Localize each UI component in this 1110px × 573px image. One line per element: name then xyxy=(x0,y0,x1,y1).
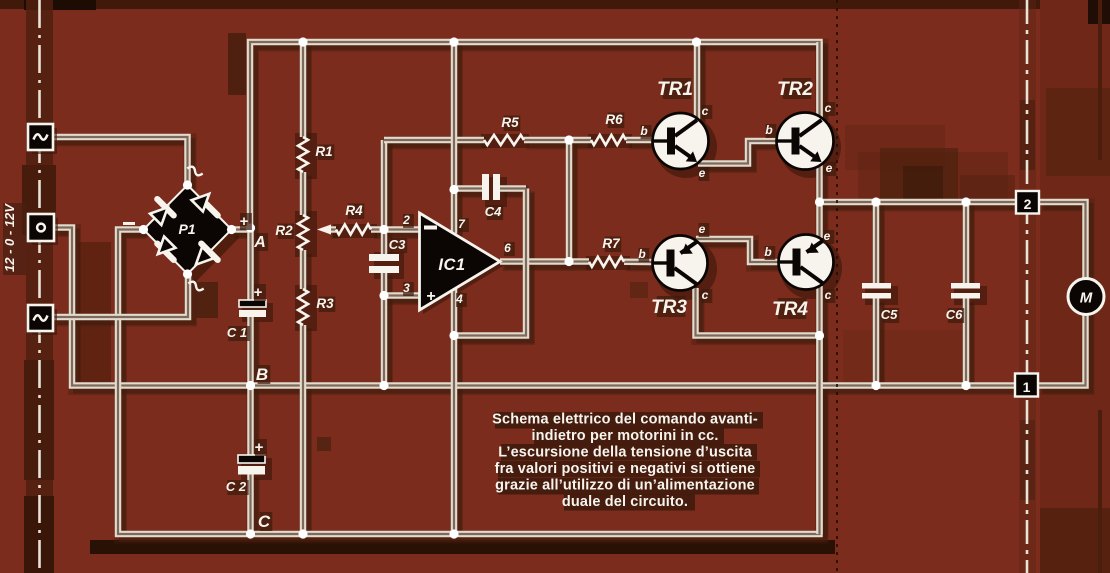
svg-text:+: + xyxy=(255,439,264,456)
svg-text:b: b xyxy=(640,124,647,138)
svg-text:TR4: TR4 xyxy=(772,299,808,320)
svg-text:indietro per motorini in cc.: indietro per motorini in cc. xyxy=(531,428,718,444)
svg-text:e: e xyxy=(824,229,831,243)
svg-text:c: c xyxy=(825,101,832,115)
svg-text:c: c xyxy=(702,104,709,118)
svg-text:2: 2 xyxy=(402,213,410,227)
svg-text:R1: R1 xyxy=(315,144,332,159)
svg-text:A: A xyxy=(253,234,266,251)
svg-text:TR2: TR2 xyxy=(777,79,813,100)
svg-text:e: e xyxy=(826,161,833,175)
svg-text:e: e xyxy=(699,222,706,236)
svg-text:12 - 0 - 12V: 12 - 0 - 12V xyxy=(2,203,17,272)
svg-text:R7: R7 xyxy=(602,236,621,251)
svg-text:R3: R3 xyxy=(316,296,334,311)
svg-text:L’escursione della tensione d’: L’escursione della tensione d’uscita xyxy=(498,445,752,461)
svg-text:TR1: TR1 xyxy=(657,79,693,100)
svg-text:C3: C3 xyxy=(389,237,406,252)
svg-text:C4: C4 xyxy=(485,204,502,219)
svg-text:R5: R5 xyxy=(501,115,519,130)
svg-text:R4: R4 xyxy=(345,203,363,218)
svg-text:b: b xyxy=(638,247,645,261)
svg-text:duale del circuito.: duale del circuito. xyxy=(562,494,688,510)
svg-text:+: + xyxy=(254,284,263,301)
svg-text:C: C xyxy=(258,512,271,531)
svg-text:R6: R6 xyxy=(605,112,623,127)
svg-text:c: c xyxy=(825,288,832,302)
svg-text:C6: C6 xyxy=(946,307,963,322)
svg-text:M: M xyxy=(1080,290,1093,307)
svg-text:4: 4 xyxy=(455,292,463,306)
svg-text:IC1: IC1 xyxy=(438,256,465,274)
svg-text:Schema elettrico del comando a: Schema elettrico del comando avanti- xyxy=(492,412,758,428)
svg-text:C5: C5 xyxy=(881,307,898,322)
svg-text:c: c xyxy=(702,288,709,302)
svg-text:1: 1 xyxy=(1023,379,1031,395)
svg-text:2: 2 xyxy=(1024,196,1032,212)
svg-text:R2: R2 xyxy=(275,223,293,238)
svg-text:b: b xyxy=(764,245,771,259)
svg-text:+: + xyxy=(240,213,249,230)
svg-text:fra valori positivi e negativi: fra valori positivi e negativi si ottien… xyxy=(495,461,756,477)
svg-text:B: B xyxy=(256,365,268,384)
svg-text:+: + xyxy=(426,288,435,305)
svg-text:e: e xyxy=(699,166,706,180)
svg-text:P1: P1 xyxy=(178,221,195,237)
svg-text:C 1: C 1 xyxy=(227,325,247,340)
svg-text:grazie all’utilizzo di un’alim: grazie all’utilizzo di un’alimentazione xyxy=(495,478,755,494)
svg-text:6: 6 xyxy=(504,241,511,255)
svg-text:TR3: TR3 xyxy=(651,297,687,318)
svg-text:b: b xyxy=(765,123,772,137)
svg-text:C 2: C 2 xyxy=(226,479,247,494)
svg-text:3: 3 xyxy=(403,281,410,295)
